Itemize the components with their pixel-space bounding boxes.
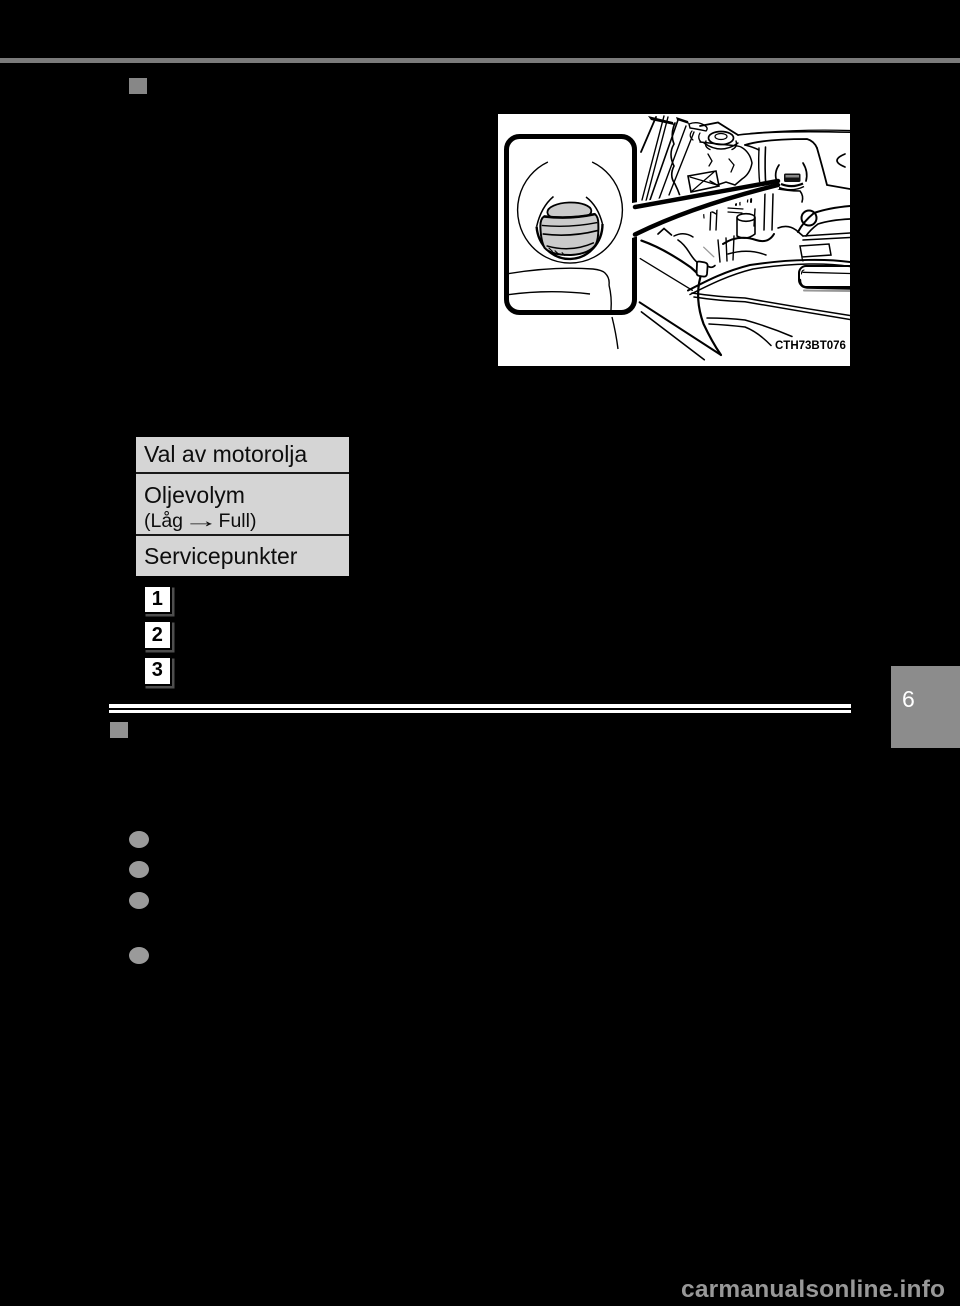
svg-text:CTH73BT076: CTH73BT076: [775, 340, 846, 352]
